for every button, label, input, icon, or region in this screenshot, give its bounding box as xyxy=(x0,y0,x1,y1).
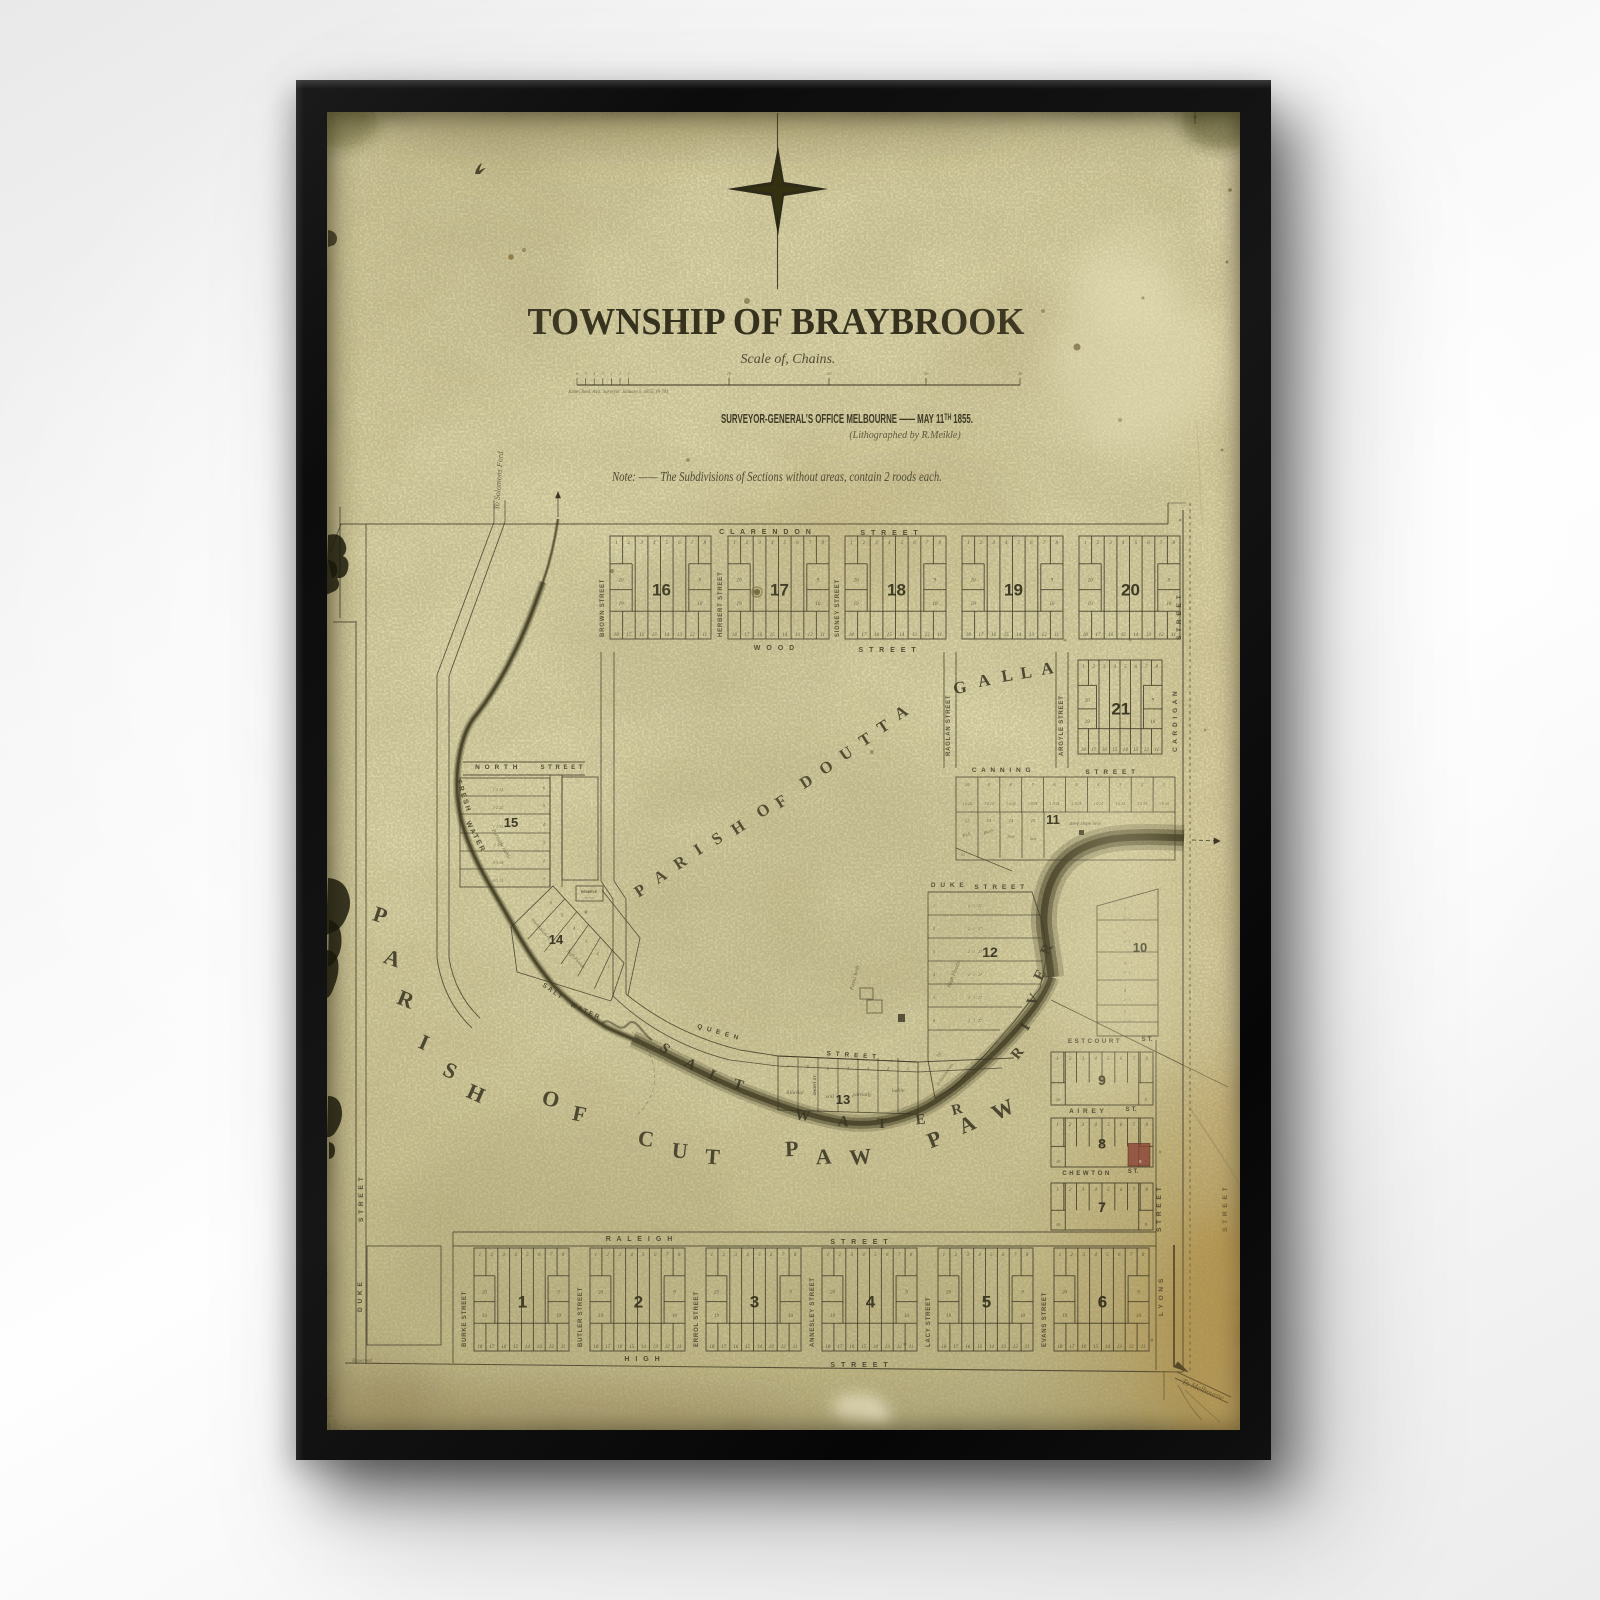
svg-text:S T R E E T: S T R E E T xyxy=(1156,1186,1163,1232)
svg-text:13: 13 xyxy=(836,1092,850,1107)
svg-text:19: 19 xyxy=(971,602,977,607)
svg-text:1: 1 xyxy=(1163,782,1165,787)
svg-text:C H E W T O N: C H E W T O N xyxy=(1062,1171,1110,1177)
svg-text:3: 3 xyxy=(602,371,604,376)
svg-text:14: 14 xyxy=(1016,633,1022,638)
svg-text:15: 15 xyxy=(1093,1345,1099,1350)
svg-text:10: 10 xyxy=(1049,602,1055,607)
svg-text:16: 16 xyxy=(991,633,997,638)
svg-text:14: 14 xyxy=(757,1345,763,1350)
svg-text:0·3·14: 0·3·14 xyxy=(493,878,503,883)
svg-text:14: 14 xyxy=(549,932,564,947)
svg-text:S T R E E T: S T R E E T xyxy=(540,765,583,771)
svg-text:15: 15 xyxy=(977,1345,983,1350)
svg-text:18: 18 xyxy=(1081,748,1087,753)
svg-text:N O R T H: N O R T H xyxy=(475,764,519,771)
svg-text:T: T xyxy=(704,1144,721,1170)
svg-text:S T R E E T: S T R E E T xyxy=(1176,594,1183,640)
svg-text:13: 13 xyxy=(653,1345,659,1350)
svg-text:12: 12 xyxy=(1159,633,1165,638)
svg-text:1: 1 xyxy=(1084,541,1087,546)
svg-text:A I R E Y: A I R E Y xyxy=(1069,1108,1105,1115)
svg-text:13: 13 xyxy=(1133,748,1139,753)
svg-text:ARGYLE STREET: ARGYLE STREET xyxy=(1059,695,1065,756)
svg-text:17: 17 xyxy=(1069,1345,1075,1350)
svg-text:P: P xyxy=(785,1136,799,1161)
svg-text:13: 13 xyxy=(1117,1345,1123,1350)
svg-text:16: 16 xyxy=(1081,1345,1087,1350)
svg-text:12: 12 xyxy=(1129,1345,1135,1350)
svg-text:11: 11 xyxy=(1141,1345,1146,1350)
svg-text:(Lithographed by R.Meikle): (Lithographed by R.Meikle) xyxy=(849,430,961,441)
svg-text:16: 16 xyxy=(1108,633,1114,638)
svg-text:1·2·20: 1·2·20 xyxy=(493,805,504,810)
svg-text:SURVEYOR-GENERAL’S OFFICE MELB: SURVEYOR-GENERAL’S OFFICE MELBOURNE —— M… xyxy=(721,412,973,426)
svg-text:1: 1 xyxy=(619,371,621,376)
svg-text:1: 1 xyxy=(907,1066,909,1071)
svg-text:0·3·14: 0·3·14 xyxy=(493,860,503,865)
svg-text:12: 12 xyxy=(549,1345,555,1350)
svg-text:partially: partially xyxy=(852,1092,873,1098)
svg-text:13: 13 xyxy=(1146,633,1152,638)
svg-text:0: 0 xyxy=(628,371,630,376)
svg-text:11: 11 xyxy=(677,1345,682,1350)
svg-text:15: 15 xyxy=(1031,818,1036,823)
svg-text:14: 14 xyxy=(1105,1345,1111,1350)
svg-text:20: 20 xyxy=(1121,581,1140,600)
svg-text:12: 12 xyxy=(665,1345,671,1350)
svg-text:5: 5 xyxy=(585,371,587,376)
svg-text:16: 16 xyxy=(501,1345,507,1350)
svg-text:10: 10 xyxy=(965,782,970,787)
svg-text:1: 1 xyxy=(608,963,610,968)
svg-text:11: 11 xyxy=(1046,812,1060,827)
svg-text:1·0·24: 1·0·24 xyxy=(1028,802,1038,806)
svg-text:Alluvial: Alluvial xyxy=(785,1090,804,1096)
svg-text:14: 14 xyxy=(899,633,905,638)
svg-text:18: 18 xyxy=(477,1345,483,1350)
svg-text:soil: soil xyxy=(826,1094,834,1100)
svg-text:15: 15 xyxy=(887,633,893,638)
svg-text:30: 30 xyxy=(924,371,929,376)
svg-text:20: 20 xyxy=(827,371,832,376)
svg-text:T: T xyxy=(877,1116,887,1132)
svg-text:8: 8 xyxy=(1098,1135,1106,1151)
svg-text:18: 18 xyxy=(709,1345,715,1350)
svg-text:1·0·24: 1·0·24 xyxy=(984,802,994,806)
svg-text:6: 6 xyxy=(576,371,578,376)
svg-text:15: 15 xyxy=(1121,633,1127,638)
svg-text:10: 10 xyxy=(1056,1097,1061,1102)
svg-text:14: 14 xyxy=(1133,633,1139,638)
svg-text:S T R E E T: S T R E E T xyxy=(858,647,917,654)
svg-text:11: 11 xyxy=(1054,633,1059,638)
svg-text:19: 19 xyxy=(1088,602,1094,607)
svg-text:1: 1 xyxy=(733,541,736,546)
svg-text:13: 13 xyxy=(1001,1345,1007,1350)
svg-text:10: 10 xyxy=(932,602,938,607)
svg-text:2 · 1 · 27: 2 · 1 · 27 xyxy=(968,995,983,1000)
svg-text:17: 17 xyxy=(978,633,984,638)
svg-text:1·0·24: 1·0·24 xyxy=(1159,802,1169,806)
svg-text:10: 10 xyxy=(1056,1159,1061,1164)
svg-text:11: 11 xyxy=(937,633,942,638)
svg-text:W: W xyxy=(794,1107,811,1125)
svg-text:S T.: S T. xyxy=(1128,1169,1139,1175)
svg-text:18: 18 xyxy=(1083,633,1089,638)
svg-text:13: 13 xyxy=(1029,633,1035,638)
svg-text:16: 16 xyxy=(617,1345,623,1350)
svg-text:18: 18 xyxy=(1057,1345,1063,1350)
svg-text:12: 12 xyxy=(1042,633,1048,638)
svg-text:1·3·14: 1·3·14 xyxy=(493,787,503,792)
svg-text:20: 20 xyxy=(1085,698,1091,703)
svg-text:15: 15 xyxy=(513,1345,519,1350)
svg-text:S T R E E T: S T R E E T xyxy=(358,1176,365,1222)
svg-text:x: x xyxy=(1158,1149,1162,1155)
svg-text:Scale of, Chains.: Scale of, Chains. xyxy=(741,352,836,367)
svg-text:17: 17 xyxy=(1095,633,1101,638)
svg-text:RAGLAN STREET: RAGLAN STREET xyxy=(946,695,952,756)
svg-text:11: 11 xyxy=(1025,1345,1030,1350)
svg-text:A: A xyxy=(815,1144,832,1170)
svg-text:1·0·24: 1·0·24 xyxy=(1072,802,1082,806)
svg-text:15: 15 xyxy=(1112,748,1118,753)
svg-text:14: 14 xyxy=(525,1345,531,1350)
svg-text:15: 15 xyxy=(629,1345,635,1350)
svg-text:1: 1 xyxy=(615,541,618,546)
svg-text:16: 16 xyxy=(874,633,880,638)
svg-text:19: 19 xyxy=(1004,581,1023,600)
svg-text:4: 4 xyxy=(593,371,595,376)
svg-text:10: 10 xyxy=(1020,1314,1026,1319)
svg-text:EVANS STREET: EVANS STREET xyxy=(1042,1292,1048,1347)
svg-text:18: 18 xyxy=(966,633,972,638)
svg-text:1: 1 xyxy=(1056,1057,1059,1062)
svg-text:SHORT ST.: SHORT ST. xyxy=(812,1075,817,1096)
svg-text:11: 11 xyxy=(1154,748,1159,753)
svg-text:W: W xyxy=(848,1143,872,1170)
svg-text:2 · 1 · 27: 2 · 1 · 27 xyxy=(968,972,983,977)
svg-text:15: 15 xyxy=(504,815,518,830)
svg-text:1·0·24: 1·0·24 xyxy=(1006,802,1016,806)
svg-text:15: 15 xyxy=(745,1345,751,1350)
svg-text:Soil: Soil xyxy=(1007,834,1015,839)
svg-text:10: 10 xyxy=(727,371,732,376)
svg-text:James Reid. Asst. Surveyor. Ja: James Reid. Asst. Surveyor. January 5. 1… xyxy=(568,390,668,395)
svg-text:15: 15 xyxy=(1004,633,1010,638)
svg-text:19: 19 xyxy=(1085,720,1091,725)
svg-text:10: 10 xyxy=(1150,720,1156,725)
svg-text:C A R D I G A N: C A R D I G A N xyxy=(1172,690,1179,752)
svg-text:16: 16 xyxy=(1102,748,1108,753)
svg-text:17: 17 xyxy=(489,1345,495,1350)
svg-text:17: 17 xyxy=(861,633,867,638)
svg-text:2 · 1 · 27: 2 · 1 · 27 xyxy=(968,1018,983,1023)
svg-text:19: 19 xyxy=(1062,1314,1068,1319)
svg-text:1: 1 xyxy=(1059,1253,1062,1258)
svg-text:11: 11 xyxy=(561,1345,566,1350)
svg-text:liable: liable xyxy=(892,1088,905,1094)
svg-text:17: 17 xyxy=(1091,748,1097,753)
svg-text:10: 10 xyxy=(1056,1222,1061,1227)
svg-text:13: 13 xyxy=(912,633,918,638)
svg-text:14: 14 xyxy=(989,1345,995,1350)
svg-text:13: 13 xyxy=(537,1345,543,1350)
svg-text:17: 17 xyxy=(721,1345,727,1350)
svg-text:7: 7 xyxy=(1098,1199,1106,1215)
svg-text:1·0·24: 1·0·24 xyxy=(1050,802,1060,806)
svg-text:20: 20 xyxy=(1088,578,1094,583)
svg-text:1: 1 xyxy=(1082,665,1085,670)
svg-text:14: 14 xyxy=(1009,818,1014,823)
svg-text:14: 14 xyxy=(1123,748,1129,753)
svg-text:21: 21 xyxy=(1111,700,1130,719)
svg-text:19: 19 xyxy=(714,1314,720,1319)
svg-text:16: 16 xyxy=(733,1345,739,1350)
svg-text:6: 6 xyxy=(1098,1293,1107,1312)
svg-text:20: 20 xyxy=(714,1290,720,1295)
svg-text:10: 10 xyxy=(1136,1314,1142,1319)
svg-text:D U K E: D U K E xyxy=(357,1281,364,1312)
svg-text:2: 2 xyxy=(610,371,612,376)
svg-text:10: 10 xyxy=(1166,602,1172,607)
svg-text:12: 12 xyxy=(1013,1345,1019,1350)
svg-text:1: 1 xyxy=(1056,1188,1059,1193)
svg-text:17: 17 xyxy=(605,1345,611,1350)
svg-text:18: 18 xyxy=(593,1345,599,1350)
svg-text:S T R E E T: S T R E E T xyxy=(1085,769,1136,776)
svg-text:H I G H: H I G H xyxy=(624,1356,661,1363)
svg-text:20: 20 xyxy=(1062,1290,1068,1295)
svg-text:A: A xyxy=(837,1114,849,1131)
svg-text:C A N N I N G: C A N N I N G xyxy=(972,767,1032,774)
svg-text:but: but xyxy=(1030,836,1037,841)
svg-text:1: 1 xyxy=(1056,1123,1059,1128)
svg-text:14: 14 xyxy=(641,1345,647,1350)
svg-text:19: 19 xyxy=(854,602,860,607)
svg-text:12: 12 xyxy=(925,633,931,638)
svg-text:1: 1 xyxy=(543,876,545,881)
svg-text:12: 12 xyxy=(1144,748,1150,753)
